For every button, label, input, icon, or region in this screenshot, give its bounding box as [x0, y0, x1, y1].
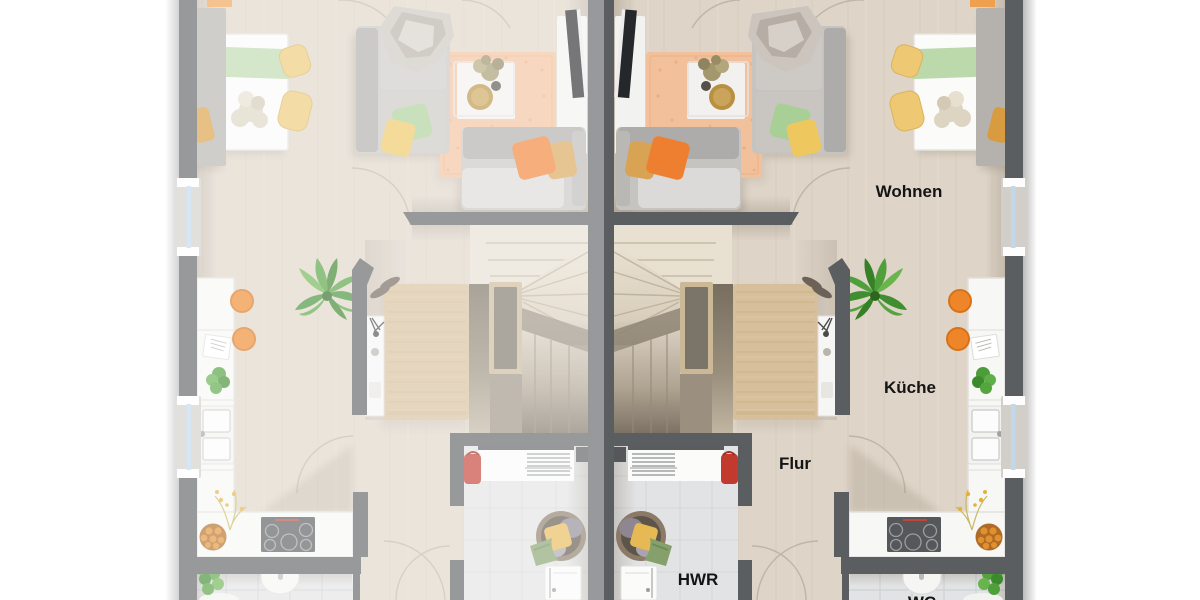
- svg-text:Wohnen: Wohnen: [876, 182, 943, 201]
- svg-text:Küche: Küche: [884, 378, 936, 397]
- svg-text:WC: WC: [908, 593, 936, 600]
- svg-text:HWR: HWR: [678, 570, 719, 589]
- svg-text:Flur: Flur: [779, 454, 811, 473]
